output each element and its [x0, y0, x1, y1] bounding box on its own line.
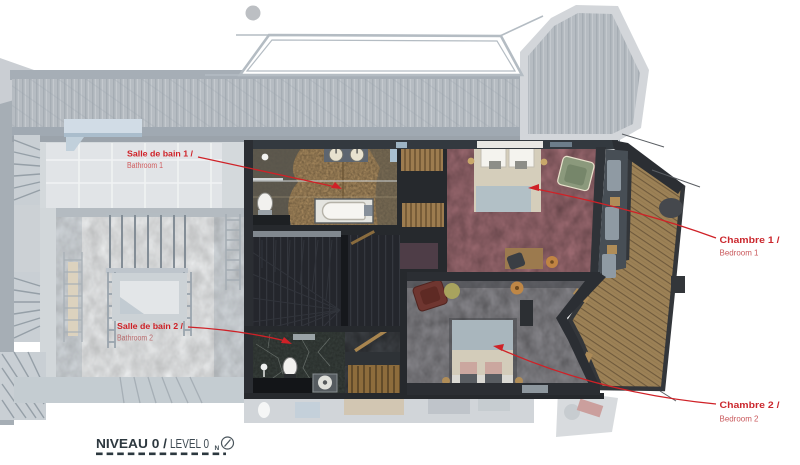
- svg-text:NIVEAU 0 /: NIVEAU 0 /: [96, 437, 168, 451]
- svg-text:Salle de bain 2 /: Salle de bain 2 /: [117, 321, 184, 331]
- svg-text:Bathroom 1: Bathroom 1: [127, 161, 163, 170]
- svg-text:Salle de bain 1 /: Salle de bain 1 /: [127, 149, 194, 159]
- svg-text:LEVEL 0: LEVEL 0: [170, 437, 209, 451]
- svg-text:N: N: [215, 445, 220, 452]
- svg-text:Bedroom 1: Bedroom 1: [720, 248, 759, 258]
- svg-text:Chambre 2 /: Chambre 2 /: [720, 400, 780, 411]
- svg-text:Bathroom 2: Bathroom 2: [117, 334, 153, 343]
- svg-text:Chambre 1 /: Chambre 1 /: [720, 235, 780, 246]
- svg-text:Bedroom 2: Bedroom 2: [720, 414, 759, 424]
